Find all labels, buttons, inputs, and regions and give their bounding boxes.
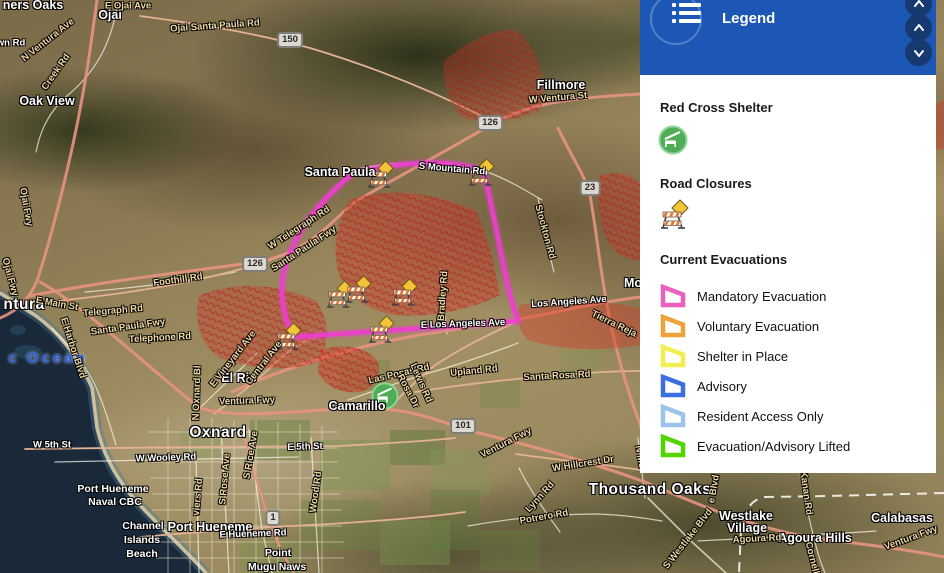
zone-swatch-icon [660,404,687,428]
chevron-down-icon [911,45,927,61]
road-closure-icon[interactable] [660,199,690,229]
legend-body: Red Cross Shelter Road Closures Current … [640,75,936,473]
legend-item-lifted[interactable]: Evacuation/Advisory Lifted [660,431,936,461]
legend-menu-button[interactable] [650,0,702,45]
legend-item-label: Evacuation/Advisory Lifted [697,439,850,454]
chevron-up-icon [911,20,927,36]
panel-title: Legend [722,10,775,27]
chevron-up-icon [911,0,927,12]
zone-swatch-icon [660,314,687,338]
shelter-marker[interactable] [372,383,397,408]
scroll-up-button[interactable] [905,14,932,41]
scroll-down-button[interactable] [905,39,932,66]
legend-item-resident-access[interactable]: Resident Access Only [660,401,936,431]
legend-panel: Legend Red Cross Shelter Road Closures C… [640,0,936,473]
legend-item-label: Voluntary Evacuation [697,319,819,334]
legend-item-shelter-in-place[interactable]: Shelter in Place [660,341,936,371]
legend-item-voluntary[interactable]: Voluntary Evacuation [660,311,936,341]
list-icon [672,1,704,27]
legend-item-label: Resident Access Only [697,409,823,424]
legend-item-label: Shelter in Place [697,349,788,364]
legend-item-label: Advisory [697,379,747,394]
zone-swatch-icon [660,284,687,308]
closures-heading: Road Closures [660,176,936,191]
legend-item-mandatory[interactable]: Mandatory Evacuation [660,281,936,311]
legend-header: Legend [640,0,936,75]
red-cross-shelter-icon[interactable] [658,125,688,155]
ocean [0,293,206,573]
zone-swatch-icon [660,434,687,458]
evacuations-heading: Current Evacuations [660,252,936,267]
evacuation-map-app: ners OaksOjaiOak ViewSanta PaulaFillmore… [0,0,944,573]
legend-item-advisory[interactable]: Advisory [660,371,936,401]
zone-swatch-icon [660,374,687,398]
shelter-heading: Red Cross Shelter [660,100,936,115]
legend-item-label: Mandatory Evacuation [697,289,826,304]
zone-swatch-icon [660,344,687,368]
